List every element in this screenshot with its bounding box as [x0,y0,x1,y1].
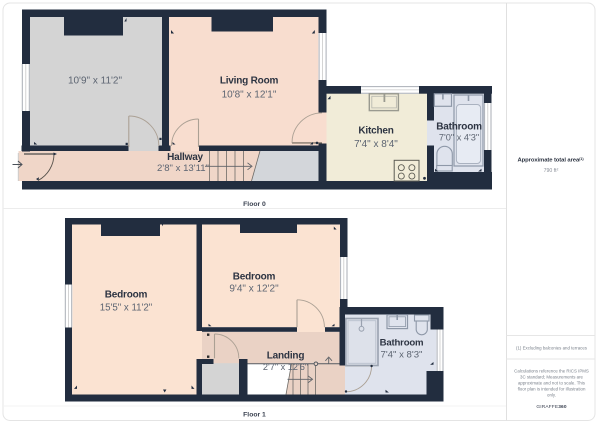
svg-text:Landing: Landing [267,351,305,362]
svg-text:(1) Excluding balconies and te: (1) Excluding balconies and terraces [516,345,588,350]
svg-text:Calculations reference the RIC: Calculations reference the RICS IPMS [514,368,589,373]
svg-text:7'0" x 4'3": 7'0" x 4'3" [439,133,479,143]
svg-text:7'4" x 8'3": 7'4" x 8'3" [381,350,423,361]
svg-text:approximate and not to scale.: approximate and not to scale. This [518,381,586,386]
svg-text:floor plan is intended for ill: floor plan is intended for illustration [518,387,586,392]
svg-text:10'8" x 12'1": 10'8" x 12'1" [222,90,277,101]
svg-text:Hallway: Hallway [167,152,203,163]
svg-text:2'8" x 13'11": 2'8" x 13'11" [157,163,209,174]
svg-text:15'5" x 11'2": 15'5" x 11'2" [100,302,153,313]
svg-text:790 ft²: 790 ft² [544,168,559,174]
svg-text:Bathroom: Bathroom [380,338,424,349]
svg-text:9'4" x 12'2": 9'4" x 12'2" [229,284,279,295]
svg-text:Floor 0: Floor 0 [243,201,266,208]
svg-text:Bedroom: Bedroom [105,290,148,301]
svg-text:Bathroom: Bathroom [436,122,482,133]
svg-text:Approximate total area(1): Approximate total area(1) [518,157,585,164]
svg-text:Floor 1: Floor 1 [243,411,266,418]
svg-text:7'4" x 8'4": 7'4" x 8'4" [354,139,398,150]
svg-text:3C standard; Measurements are: 3C standard; Measurements are [520,374,584,379]
svg-text:only.: only. [547,393,556,398]
svg-text:Kitchen: Kitchen [358,126,393,137]
svg-text:10'9" x 11'2": 10'9" x 11'2" [68,76,123,87]
svg-text:Living Room: Living Room [220,76,279,87]
svg-text:GIRAFFE360: GIRAFFE360 [536,404,566,410]
svg-text:2'7" x 12'6": 2'7" x 12'6" [263,362,308,372]
svg-text:Bedroom: Bedroom [233,272,276,283]
